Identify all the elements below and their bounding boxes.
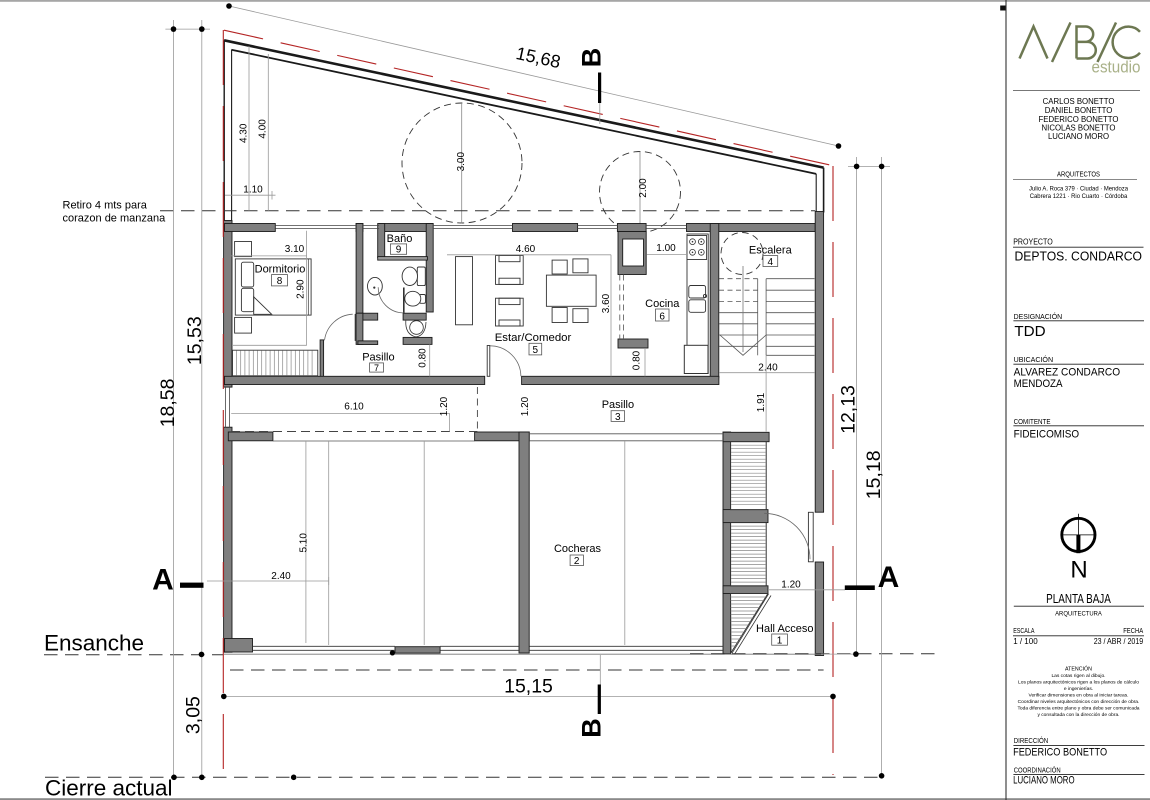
svg-text:4.60: 4.60 — [516, 244, 536, 255]
svg-text:COMITENTE: COMITENTE — [1014, 417, 1051, 426]
svg-text:3: 3 — [615, 412, 621, 423]
svg-text:TDD: TDD — [1014, 323, 1045, 340]
svg-text:ALVAREZ CONDARCO: ALVAREZ CONDARCO — [1014, 366, 1121, 378]
svg-text:9: 9 — [396, 245, 402, 256]
svg-text:Cierre actual: Cierre actual — [45, 776, 173, 800]
svg-text:1.00: 1.00 — [656, 243, 676, 254]
svg-text:1.20: 1.20 — [520, 396, 531, 416]
svg-text:MENDOZA: MENDOZA — [1014, 378, 1064, 390]
svg-text:6: 6 — [659, 311, 665, 322]
svg-text:Verificar dimensiones en obra: Verificar dimensiones en obra al iniciar… — [1028, 693, 1128, 699]
svg-text:23 / ABR / 2019: 23 / ABR / 2019 — [1094, 637, 1144, 646]
svg-text:LUCIANO MORO: LUCIANO MORO — [1048, 132, 1109, 141]
svg-text:DESIGNACIÓN: DESIGNACIÓN — [1014, 312, 1063, 321]
svg-text:CARLOS BONETTO: CARLOS BONETTO — [1043, 97, 1115, 106]
svg-text:B: B — [577, 718, 607, 738]
svg-text:ATENCIÓN: ATENCIÓN — [1065, 666, 1092, 673]
svg-text:ARQUITECTOS: ARQUITECTOS — [1057, 169, 1100, 178]
svg-text:0.80: 0.80 — [632, 350, 643, 370]
svg-text:15,18: 15,18 — [863, 450, 885, 499]
svg-text:Retiro 4 mts para: Retiro 4 mts para — [63, 200, 148, 212]
svg-text:1.20: 1.20 — [439, 396, 450, 416]
svg-text:2.00: 2.00 — [638, 178, 649, 198]
svg-text:3.60: 3.60 — [601, 293, 612, 313]
svg-text:DIRECCIÓN: DIRECCIÓN — [1014, 736, 1048, 745]
svg-text:2: 2 — [574, 556, 580, 567]
svg-text:8: 8 — [277, 276, 283, 287]
svg-text:Estar/Comedor: Estar/Comedor — [495, 332, 572, 344]
svg-text:NICOLAS BONETTO: NICOLAS BONETTO — [1042, 124, 1116, 133]
svg-text:3.10: 3.10 — [285, 244, 305, 255]
svg-text:Los planos arquitectónicos rig: Los planos arquitectónicos rigen a los p… — [1018, 679, 1139, 685]
svg-text:6.10: 6.10 — [344, 402, 364, 413]
svg-text:UBICACIÓN: UBICACIÓN — [1014, 355, 1054, 364]
svg-text:1.10: 1.10 — [243, 184, 263, 195]
svg-text:Coordinar niveles arquitectóni: Coordinar niveles arquitectónicos con di… — [1018, 699, 1140, 705]
svg-text:Ensanche: Ensanche — [44, 631, 144, 656]
svg-text:3,05: 3,05 — [183, 696, 205, 734]
svg-text:ARQUITECTURA: ARQUITECTURA — [1055, 610, 1102, 617]
svg-text:N: N — [1070, 557, 1087, 584]
svg-text:e ingenierías.: e ingenierías. — [1064, 686, 1093, 692]
svg-text:Cabrera 1221 · Rio Cuarto · Có: Cabrera 1221 · Rio Cuarto · Córdoba — [1030, 193, 1128, 200]
svg-text:0.80: 0.80 — [418, 348, 429, 368]
svg-text:Hall Acceso: Hall Acceso — [756, 623, 813, 635]
svg-text:5.10: 5.10 — [299, 533, 310, 553]
svg-text:PLANTA BAJA: PLANTA BAJA — [1046, 592, 1111, 606]
svg-text:2.90: 2.90 — [296, 279, 307, 299]
svg-text:Baño: Baño — [387, 233, 413, 245]
svg-text:5: 5 — [533, 345, 539, 356]
svg-text:1.91: 1.91 — [756, 392, 767, 412]
svg-text:corazon de manzana: corazon de manzana — [63, 213, 167, 225]
svg-text:DANIEL BONETTO: DANIEL BONETTO — [1045, 106, 1113, 115]
svg-text:A: A — [878, 561, 900, 594]
svg-text:Pasillo: Pasillo — [362, 351, 394, 363]
svg-text:Escalera: Escalera — [749, 244, 793, 256]
svg-text:estudio: estudio — [1092, 59, 1141, 77]
svg-text:ESCALA: ESCALA — [1013, 626, 1034, 635]
svg-text:2.40: 2.40 — [758, 362, 778, 373]
svg-text:12,13: 12,13 — [838, 385, 860, 434]
svg-text:1 / 100: 1 / 100 — [1013, 637, 1038, 646]
svg-text:Toda diferencia entre plano y: Toda diferencia entre plano y obra debe … — [1017, 706, 1139, 712]
svg-text:y consultada con la dirección: y consultada con la dirección de obra. — [1037, 712, 1119, 718]
svg-text:15,53: 15,53 — [184, 316, 206, 365]
svg-text:COORDINACIÓN: COORDINACIÓN — [1014, 766, 1061, 775]
svg-text:LUCIANO MORO: LUCIANO MORO — [1013, 774, 1075, 786]
svg-text:Las cotas rigen al dibujo.: Las cotas rigen al dibujo. — [1051, 673, 1105, 679]
svg-text:DEPTOS. CONDARCO: DEPTOS. CONDARCO — [1015, 249, 1143, 264]
svg-text:1.20: 1.20 — [781, 579, 801, 590]
svg-text:Julio A. Roca 379 · Ciudad · M: Julio A. Roca 379 · Ciudad · Mendoza — [1029, 186, 1128, 193]
svg-text:1: 1 — [777, 636, 783, 647]
svg-text:FIDEICOMISO: FIDEICOMISO — [1014, 428, 1080, 440]
svg-text:FEDERICO BONETTO: FEDERICO BONETTO — [1039, 115, 1119, 124]
svg-text:2.40: 2.40 — [271, 571, 291, 582]
svg-text:4.00: 4.00 — [258, 119, 269, 139]
svg-text:18,58: 18,58 — [157, 378, 179, 427]
svg-text:4.30: 4.30 — [239, 123, 250, 143]
svg-text:Cocina: Cocina — [645, 298, 680, 310]
svg-text:PROYECTO: PROYECTO — [1013, 238, 1052, 247]
svg-text:FEDERICO BONETTO: FEDERICO BONETTO — [1013, 746, 1107, 758]
svg-text:15,15: 15,15 — [504, 676, 553, 698]
svg-text:7: 7 — [374, 363, 379, 373]
svg-text:3.00: 3.00 — [456, 152, 467, 172]
svg-text:A: A — [152, 564, 174, 597]
svg-text:Pasillo: Pasillo — [602, 399, 634, 411]
svg-text:4: 4 — [768, 257, 774, 268]
svg-text:Dormitorio: Dormitorio — [255, 264, 306, 276]
svg-text:FECHA: FECHA — [1123, 626, 1143, 635]
svg-text:B: B — [577, 48, 607, 68]
svg-text:Cocheras: Cocheras — [554, 543, 602, 555]
